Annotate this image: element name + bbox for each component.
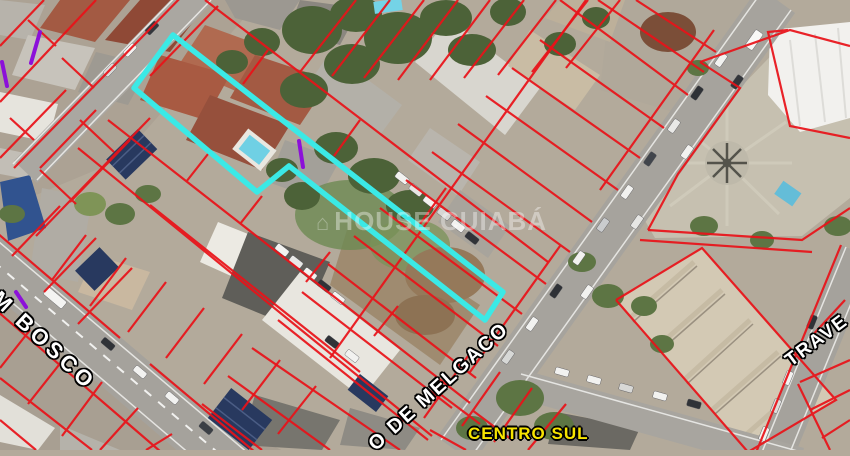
satellite-map-image: M BOSCO O DE MELGACO TRAVE CENTRO SUL ⌂H… [0, 0, 850, 450]
satellite-canvas [0, 0, 850, 450]
monument-icon [705, 141, 749, 185]
